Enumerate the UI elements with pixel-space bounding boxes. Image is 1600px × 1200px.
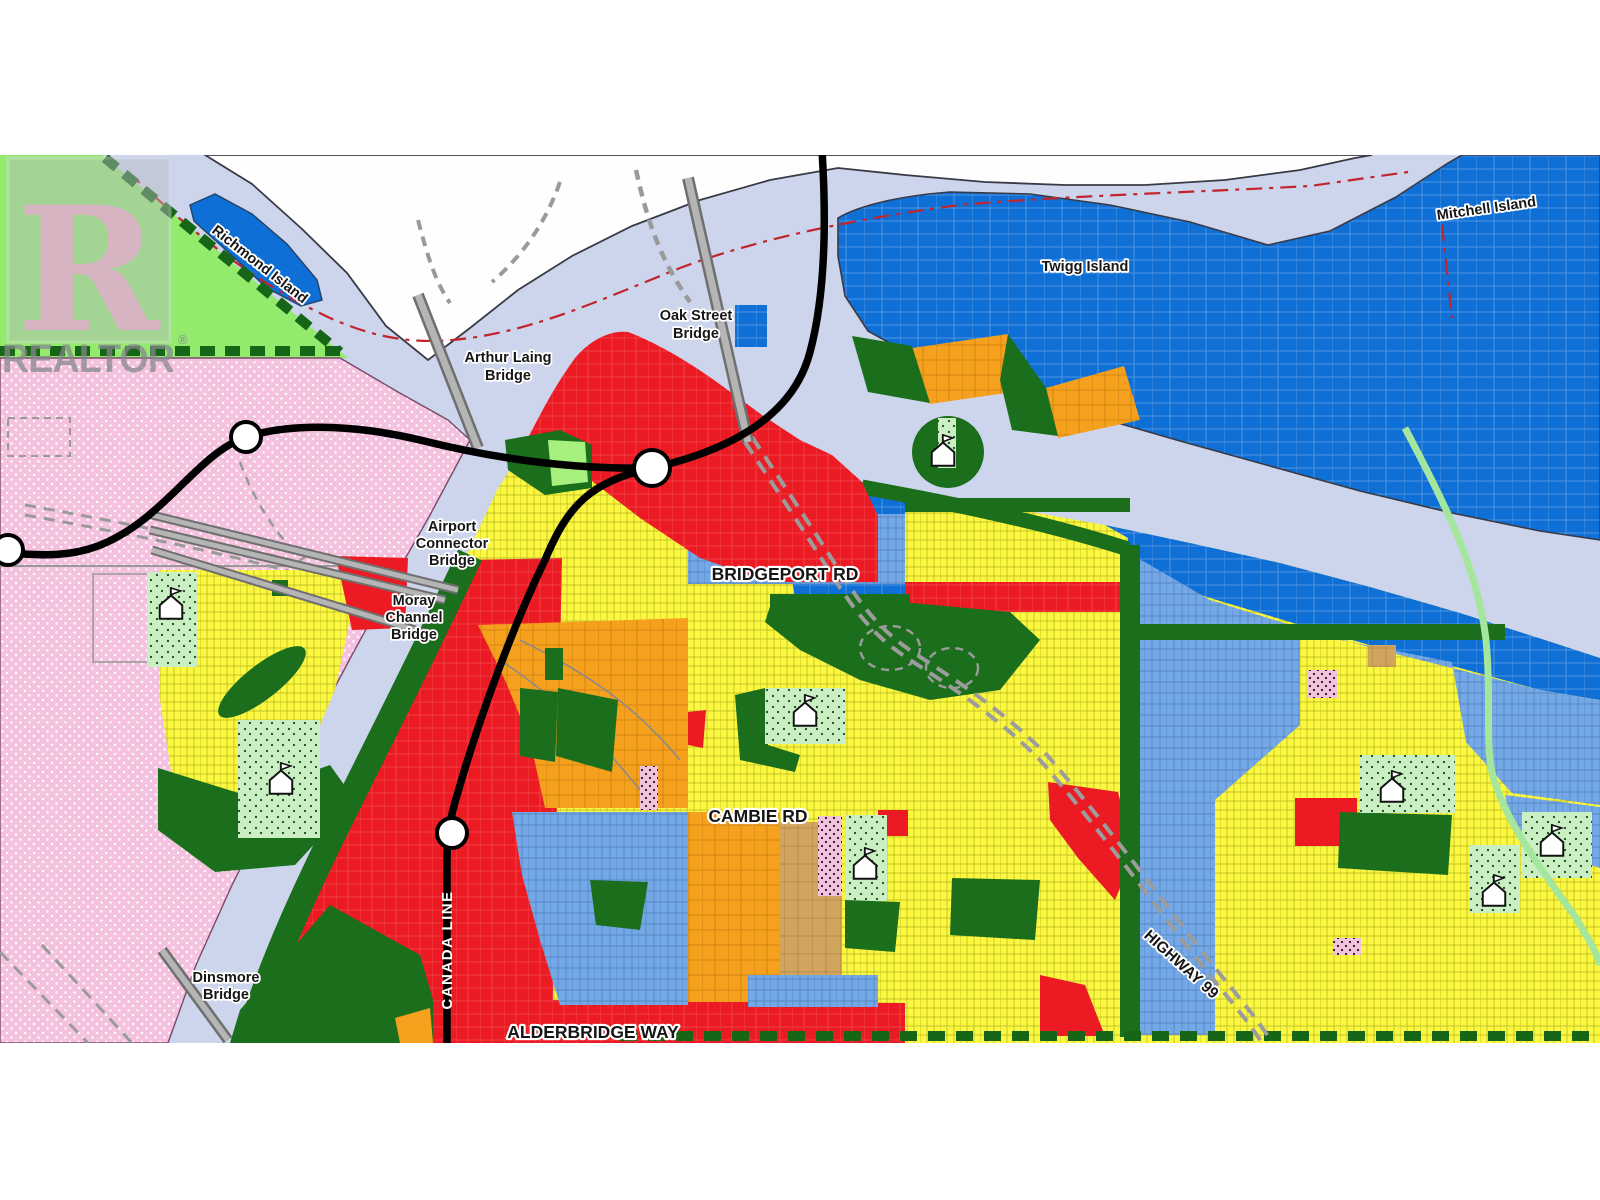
shell-rd-green-corridor: [1120, 545, 1140, 1037]
institutional: [640, 766, 658, 810]
station-icon: [634, 450, 670, 486]
realtor-watermark: R REALTOR ®: [2, 158, 188, 381]
label-bridgeport-rd: BRIDGEPORT RD: [712, 564, 859, 584]
label-arthur-laing-bridge: Bridge: [485, 368, 531, 384]
institutional: [818, 816, 842, 896]
label-dinsmore-bridge: Bridge: [203, 987, 249, 1003]
school-grounds: [1360, 755, 1455, 813]
station-icon: [0, 535, 23, 565]
park: [545, 648, 563, 680]
orange-strip: [688, 812, 780, 1002]
park: [1338, 812, 1452, 875]
industrial-tan: [1368, 645, 1396, 667]
label-oak-street-bridge: Oak Street: [660, 308, 733, 324]
label-dinsmore-bridge: Dinsmore: [193, 970, 260, 986]
label-moray-channel-bridge: Moray: [393, 593, 436, 609]
multifamily-sliver: [748, 975, 878, 1007]
watermark-brand: REALTOR: [2, 337, 175, 381]
river-parcel: [735, 305, 767, 347]
zoning-map: Richmond Island Twigg Island Mitchell Is…: [0, 0, 1600, 1200]
label-moray-channel-bridge: Channel: [385, 610, 442, 626]
commercial-patch: [688, 710, 706, 748]
river-parcel: [985, 253, 1011, 289]
watermark-registered: ®: [178, 332, 188, 347]
cambie-east-green-corridor: [1120, 624, 1505, 640]
label-twigg-island: Twigg Island: [1042, 259, 1129, 275]
label-canada-line: CANADA LINE: [439, 890, 456, 1009]
map-layers: Richmond Island Twigg Island Mitchell Is…: [0, 150, 1600, 1043]
greenway: [905, 498, 1130, 512]
label-alderbridge-way: ALDERBRIDGE WAY: [507, 1022, 679, 1042]
label-oak-street-bridge: Bridge: [673, 326, 719, 342]
park: [845, 900, 900, 952]
institutional: [1307, 670, 1337, 698]
park: [520, 688, 558, 762]
park: [950, 878, 1040, 940]
institutional: [1333, 938, 1361, 955]
zoning-map-page: Richmond Island Twigg Island Mitchell Is…: [0, 0, 1600, 1200]
label-airport-connector-bridge: Bridge: [429, 553, 475, 569]
label-airport-connector-bridge: Connector: [416, 536, 489, 552]
park: [590, 880, 648, 930]
label-cambie-rd: CAMBIE RD: [708, 806, 807, 826]
label-arthur-laing-bridge: Arthur Laing: [465, 350, 552, 366]
station-icon: [231, 422, 261, 452]
label-moray-channel-bridge: Bridge: [391, 627, 437, 643]
station-icon: [437, 818, 467, 848]
label-airport-connector-bridge: Airport: [428, 519, 477, 535]
